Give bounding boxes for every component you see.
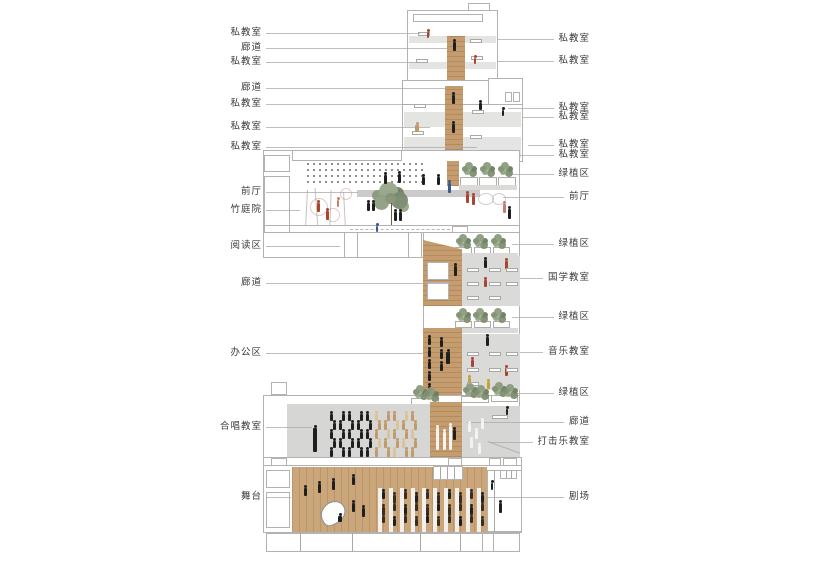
- figure: [405, 450, 408, 457]
- stair-cutout: [427, 262, 449, 280]
- column-box: [408, 232, 422, 258]
- figure: [405, 414, 408, 421]
- figure: [481, 421, 484, 429]
- figure: [454, 266, 457, 276]
- figure: [387, 450, 390, 457]
- figure: [352, 503, 355, 512]
- figure: [428, 338, 431, 345]
- figure: [318, 484, 321, 493]
- figure: [360, 414, 363, 421]
- basement-wall: [300, 533, 301, 552]
- plant: [463, 387, 469, 393]
- wall-box: [264, 155, 290, 172]
- label-private-classroom: 私教室: [558, 55, 590, 66]
- figure: [415, 519, 418, 526]
- figure: [330, 450, 333, 457]
- leader-line: [266, 246, 340, 247]
- figure: [387, 432, 390, 439]
- planter-box: [491, 395, 518, 402]
- label-corridor: 廊道: [241, 42, 262, 53]
- figure: [367, 203, 370, 211]
- plant: [424, 391, 430, 397]
- leader-line: [503, 197, 564, 198]
- leader-line: [508, 108, 554, 109]
- leader-line: [520, 278, 543, 279]
- column-box: [344, 232, 358, 258]
- figure: [481, 519, 484, 526]
- section-drawing: 私教室廊道私教室廊道私教室私教室私教室前厅竹庭院阅读区廊道办公区合唱教室舞台私教…: [0, 0, 818, 578]
- figure: [360, 432, 363, 439]
- annex-window: [505, 92, 512, 102]
- leader-line: [266, 62, 420, 63]
- roof-notch: [468, 3, 490, 11]
- figure: [372, 203, 375, 211]
- figure: [332, 481, 335, 490]
- figure: [369, 441, 372, 448]
- figure: [351, 441, 354, 448]
- plant: [473, 238, 479, 244]
- booth-mullion: [440, 467, 441, 479]
- figure: [376, 226, 378, 232]
- figure: [351, 423, 354, 430]
- booth-mullion: [454, 467, 455, 479]
- label-chinese-studies-classroom: 国学教室: [548, 272, 590, 283]
- figure: [440, 340, 443, 347]
- leader-line: [498, 61, 554, 62]
- figure: [411, 450, 414, 457]
- figure: [428, 374, 431, 381]
- annex-mullion: [506, 471, 507, 478]
- figure: [342, 450, 345, 457]
- figure: [440, 352, 443, 359]
- planter-box: [455, 321, 472, 328]
- figure: [466, 194, 469, 203]
- bridge-beam: [357, 190, 480, 197]
- leader-line: [266, 283, 455, 284]
- figure: [422, 177, 425, 185]
- desk: [489, 268, 501, 272]
- label-private-classroom: 私教室: [230, 121, 262, 132]
- figure: [428, 362, 431, 369]
- parapet: [413, 14, 483, 22]
- figure: [378, 423, 381, 430]
- desk: [506, 368, 518, 372]
- figure: [468, 424, 471, 432]
- figure: [396, 423, 399, 430]
- label-music-classroom: 音乐教室: [548, 346, 590, 357]
- figure: [415, 125, 419, 132]
- label-private-classroom: 私教室: [230, 27, 262, 38]
- figure: [384, 175, 387, 184]
- figure: [459, 519, 462, 526]
- label-private-classroom: 私教室: [230, 141, 262, 152]
- label-foyer: 前厅: [241, 186, 262, 197]
- desk: [467, 282, 479, 286]
- figure: [387, 414, 390, 421]
- figure: [499, 503, 502, 513]
- figure: [453, 42, 456, 51]
- figure: [472, 196, 475, 205]
- figure: [393, 450, 396, 457]
- figure: [474, 58, 476, 64]
- desk: [506, 268, 518, 272]
- plant: [491, 312, 497, 318]
- figure: [479, 103, 482, 110]
- figure: [378, 441, 381, 448]
- figure: [486, 337, 489, 346]
- figure: [366, 450, 369, 457]
- desk: [492, 415, 508, 419]
- figure: [446, 352, 450, 364]
- leader-line: [266, 127, 430, 128]
- figure: [337, 200, 339, 207]
- leader-line: [487, 497, 564, 498]
- desk: [489, 296, 501, 300]
- desk: [506, 282, 518, 286]
- leader-line: [520, 352, 543, 353]
- label-green-planting-area: 绿植区: [558, 311, 590, 322]
- plant: [498, 166, 504, 172]
- figure: [481, 504, 484, 511]
- desk: [467, 268, 479, 272]
- figure: [360, 450, 363, 457]
- figure: [502, 110, 504, 116]
- figure: [382, 516, 385, 523]
- figure: [404, 516, 407, 523]
- figure: [338, 516, 342, 522]
- figure: [470, 492, 473, 499]
- figure: [506, 409, 508, 415]
- desk: [467, 296, 479, 300]
- leader-line: [516, 393, 554, 394]
- label-percussion-classroom: 打击乐教室: [537, 436, 590, 447]
- desk: [489, 352, 501, 356]
- leader-line: [266, 353, 425, 354]
- figure: [405, 432, 408, 439]
- figure: [470, 516, 473, 523]
- label-choir-classroom: 合唱教室: [220, 421, 262, 432]
- figure: [478, 446, 481, 454]
- plant: [491, 238, 497, 244]
- figure: [470, 440, 473, 448]
- figure: [348, 450, 351, 457]
- plant: [456, 238, 462, 244]
- choir-room: [287, 404, 430, 457]
- annex-wall-line: [494, 470, 495, 532]
- leader-line: [266, 48, 447, 49]
- figure: [342, 414, 345, 421]
- leader-line: [266, 33, 420, 34]
- figure: [487, 382, 490, 389]
- leader-line: [512, 317, 554, 318]
- figure: [491, 483, 493, 490]
- figure: [393, 519, 396, 526]
- figure: [382, 492, 385, 499]
- desk: [506, 352, 518, 356]
- desk: [470, 135, 482, 139]
- label-green-planting-area: 绿植区: [558, 168, 590, 179]
- label-theater: 剧场: [569, 491, 590, 502]
- figure: [475, 431, 478, 439]
- leader-line: [266, 497, 291, 498]
- leader-line: [266, 192, 358, 193]
- figure: [484, 280, 487, 287]
- leader-line: [490, 442, 533, 443]
- figure: [453, 430, 456, 440]
- leader-line: [266, 147, 477, 148]
- label-bamboo-courtyard: 竹庭院: [230, 204, 262, 215]
- label-private-classroom: 私教室: [558, 33, 590, 44]
- leader-line: [266, 427, 312, 428]
- figure: [399, 212, 402, 221]
- plant: [473, 312, 479, 318]
- figure: [503, 204, 506, 213]
- plant: [503, 388, 509, 394]
- basement-wall: [420, 533, 421, 552]
- control-booth: [433, 466, 463, 480]
- figure: [448, 492, 451, 499]
- leader-line: [498, 39, 554, 40]
- basement-wall: [352, 533, 353, 552]
- figure: [394, 212, 397, 221]
- figure: [333, 441, 336, 448]
- wall-box: [266, 470, 290, 488]
- bamboo-sketch-circle: [340, 188, 352, 200]
- plant: [462, 166, 468, 172]
- figure: [396, 441, 399, 448]
- label-private-classroom: 私教室: [230, 56, 262, 67]
- leader-line: [523, 117, 554, 118]
- desk: [489, 368, 501, 372]
- figure: [317, 203, 320, 212]
- figure: [471, 360, 474, 367]
- stair-cutout: [427, 282, 449, 300]
- figure: [362, 508, 365, 517]
- figure: [375, 450, 378, 457]
- leader-line: [512, 244, 554, 245]
- figure: [436, 428, 439, 450]
- desk: [489, 282, 501, 286]
- label-foyer: 前厅: [569, 191, 590, 202]
- figure: [326, 211, 329, 220]
- figure: [304, 488, 307, 496]
- figure: [333, 423, 336, 430]
- wall-box: [271, 382, 287, 395]
- plant: [492, 386, 498, 392]
- figure: [484, 260, 487, 268]
- figure: [443, 432, 446, 450]
- ceiling-box: [292, 150, 402, 161]
- stair-core: [447, 36, 465, 82]
- annex-window: [500, 470, 517, 479]
- label-stage: 舞台: [241, 491, 262, 502]
- figure: [352, 477, 355, 485]
- label-private-classroom: 私教室: [230, 98, 262, 109]
- figure: [426, 516, 429, 523]
- plant: [456, 312, 462, 318]
- figure: [437, 519, 440, 526]
- desk: [467, 352, 479, 356]
- figure: [414, 441, 417, 448]
- plant: [480, 166, 486, 172]
- figure: [404, 492, 407, 499]
- figure: [415, 504, 418, 511]
- figure: [427, 32, 429, 38]
- leader-line: [528, 145, 554, 146]
- label-private-classroom: 私教室: [558, 149, 590, 160]
- label-office-area: 办公区: [230, 347, 262, 358]
- figure: [393, 504, 396, 511]
- figure: [452, 95, 455, 104]
- dashed-floor-line: [350, 229, 450, 230]
- figure: [508, 209, 511, 219]
- label-green-planting-area: 绿植区: [558, 387, 590, 398]
- plant: [474, 389, 480, 395]
- figure: [437, 504, 440, 511]
- basement-box: [482, 533, 494, 552]
- wood-panel: [430, 402, 462, 457]
- label-reading-area: 阅读区: [230, 240, 262, 251]
- figure: [342, 432, 345, 439]
- label-corridor: 廊道: [241, 82, 262, 93]
- booth-mullion: [447, 467, 448, 479]
- label-private-classroom: 私教室: [558, 111, 590, 122]
- figure: [398, 174, 401, 183]
- figure: [426, 492, 429, 499]
- planter-box: [474, 321, 491, 328]
- figure: [448, 516, 451, 523]
- figure: [369, 423, 372, 430]
- leader-line: [266, 210, 300, 211]
- figure: [459, 504, 462, 511]
- figure: [449, 426, 452, 450]
- figure: [437, 177, 440, 185]
- label-corridor: 廊道: [241, 277, 262, 288]
- desk: [472, 110, 484, 114]
- annex-window: [513, 92, 520, 102]
- leader-line: [266, 88, 447, 89]
- plant: [413, 389, 419, 395]
- wall-box: [264, 176, 290, 230]
- planter-box: [461, 396, 489, 403]
- planter-box: [493, 321, 510, 328]
- leader-line: [520, 155, 554, 156]
- desk: [470, 39, 482, 43]
- figure: [448, 183, 451, 193]
- figure: [414, 423, 417, 430]
- desk: [471, 56, 483, 60]
- figure: [452, 124, 455, 133]
- desk: [467, 382, 479, 386]
- acoustic-baffle-ceiling: [307, 161, 427, 183]
- leader-line: [266, 104, 418, 105]
- leader-line: [512, 174, 554, 175]
- desk: [467, 368, 479, 372]
- figure: [440, 364, 443, 371]
- label-green-planting-area: 绿植区: [558, 238, 590, 249]
- basement-wall: [460, 533, 461, 552]
- figure: [313, 428, 317, 452]
- annex-mullion: [511, 471, 512, 478]
- figure: [428, 350, 431, 357]
- label-corridor: 廊道: [569, 416, 590, 427]
